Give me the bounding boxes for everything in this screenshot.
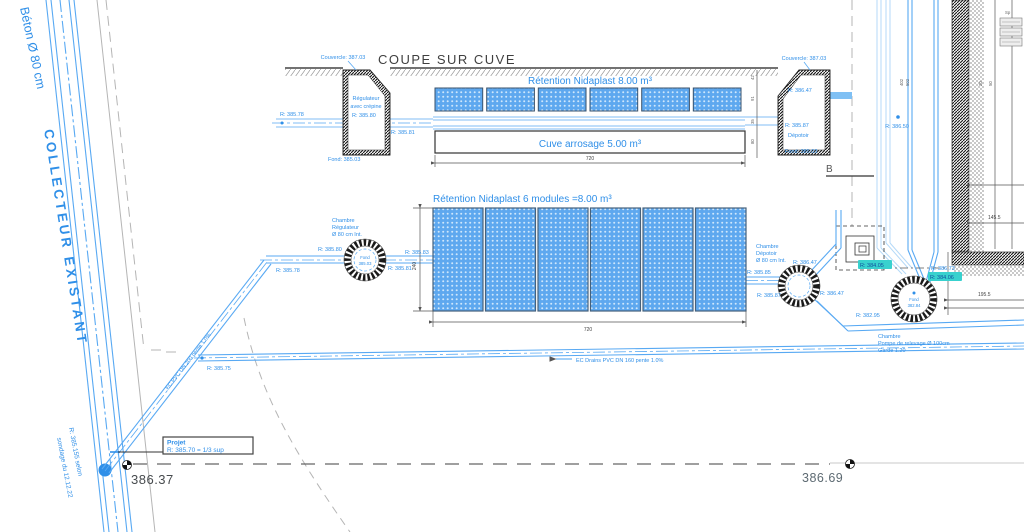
drain-invert-label: R: 385.75	[207, 366, 231, 372]
outlet-stub	[830, 92, 852, 99]
collector-existant-label: COLLECTEUR EXISTANT	[41, 128, 90, 346]
micro-dim: 20	[978, 81, 983, 86]
regulator-label-2: Régulateur	[332, 225, 359, 231]
wall-hatched	[952, 252, 1024, 265]
retention-modules-plan	[433, 208, 746, 311]
couvercle-label: Couvercle: 387.03	[782, 56, 827, 62]
depotoir-name: Dépotoir	[788, 133, 809, 139]
cuve-label: Cuve arrosage 5.00 m³	[539, 139, 642, 150]
invert-label: R: 385.81	[388, 266, 412, 272]
nidaplast-module	[538, 88, 586, 111]
regulator-label-1: Chambre	[332, 218, 355, 224]
regulator-chamber-inner	[351, 246, 379, 274]
dim-small: 91	[750, 96, 755, 101]
nidaplast-module	[643, 208, 693, 311]
inlet-detail-mid	[846, 236, 874, 262]
projet-title: Projet	[167, 440, 186, 447]
wall-invert-label: R: 386.50	[885, 124, 909, 130]
secondary-pipe-line	[843, 320, 1024, 326]
fond-label: Fond: 385.03	[328, 157, 360, 163]
micro-dim: 50	[988, 81, 993, 86]
depotoir-label-1: Chambre	[756, 244, 779, 250]
drain-pipe-label: EC Drains PVC DN 160 pente 1.0%	[576, 358, 664, 364]
invert-top: R: 386.47	[788, 88, 812, 94]
pump-label-1: Chambre	[878, 334, 901, 340]
collector-note-1: R: 385.155 selon	[67, 427, 83, 477]
nidaplast-module	[693, 88, 741, 111]
leader-line	[804, 62, 810, 70]
cad-drawing-canvas: Béton Ø 80 cm COLLECTEUR EXISTANT R: 385…	[0, 0, 1024, 532]
invert-label: R: 385.83	[405, 250, 429, 256]
invert-left: R: 385.78	[280, 112, 304, 118]
benchmark-quadrant	[846, 464, 851, 469]
nidaplast-module	[433, 208, 483, 311]
level-node	[896, 115, 900, 119]
plan-view: Rétention Nidaplast 6 modules =8.00 m³ 2…	[276, 194, 962, 354]
invert-label: R: 386.47	[793, 260, 817, 266]
benchmark-1	[123, 461, 132, 470]
regulator-name-2: avec crépine	[350, 104, 381, 110]
dim-small: 35	[750, 119, 755, 124]
plan-dim-720: 720	[584, 327, 593, 333]
section-dim-720: 720	[586, 156, 595, 162]
right-services: R: 386.50 402 502 20 50 145.5 195.5 Sp B	[826, 0, 1024, 315]
survey-annotations: 386.37 386.69 Projet R: 385.70 = 1/3 sup	[110, 437, 1024, 487]
depotoir-label-3: Ø 80 cm Int.	[756, 258, 786, 264]
ground-hatch	[390, 69, 778, 76]
invert-highlight: R: 384.05	[860, 263, 884, 269]
pump-fond-1: Fond	[909, 297, 919, 302]
boundary-dashed-line	[106, 0, 144, 350]
plan-dim-240: 240	[412, 262, 418, 271]
pump-node	[913, 292, 916, 295]
diag-pipe-label: EC PVC DN 200 pente 1.0%	[165, 332, 213, 391]
inlet-detail-inner	[855, 243, 869, 255]
depotoir-label-2: Dépotoir	[756, 251, 777, 257]
benchmark-quadrant	[850, 460, 855, 465]
benchmark-quadrant	[127, 461, 132, 466]
nidaplast-module	[696, 208, 747, 311]
section-title: COUPE SUR CUVE	[378, 52, 516, 67]
ground-level-1: 386.37	[131, 472, 174, 487]
pump-fond-2: 382.84	[908, 303, 921, 308]
invert-label: R: 385.85	[747, 270, 771, 276]
invert-label: R: 385.78	[276, 268, 300, 274]
micro-dim: 402	[899, 78, 904, 86]
nidaplast-module	[591, 208, 641, 311]
retention-section-label: Rétention Nidaplast 8.00 m³	[528, 76, 653, 87]
pump-label-2: Pompe de relevage Ø 100cm	[878, 341, 950, 347]
secondary-pipe-line	[848, 325, 1024, 331]
dim-small: 80	[750, 139, 755, 144]
invert-highlight: R: 384.06	[930, 275, 954, 281]
invert-label: R: 385.80	[318, 247, 342, 253]
dim-small: 42	[750, 75, 755, 80]
pump-label-3: Garde 1.20	[878, 348, 906, 354]
couvercle-label: Couvercle: 387.03	[321, 55, 366, 61]
depotoir-chamber-inner	[785, 272, 813, 300]
invert-out: R: 385.81	[391, 130, 415, 136]
invert-in: R: 385.87	[785, 123, 809, 129]
nidaplast-module	[486, 208, 536, 311]
wall-hatched	[952, 0, 969, 252]
leader-line	[348, 61, 356, 70]
pipe-node	[281, 122, 284, 125]
junction-node	[200, 356, 203, 359]
section-view: COUPE SUR CUVE Couvercle: 387.03 Régulat…	[272, 52, 852, 167]
wall-insulation	[969, 0, 984, 252]
nidaplast-module	[487, 88, 535, 111]
projet-value: R: 385.70 = 1/3 sup	[167, 447, 224, 454]
nidaplast-module	[590, 88, 638, 111]
wall-insulation	[952, 265, 1024, 276]
ground-level-2: 386.69	[802, 471, 843, 485]
micro-dim: 502	[905, 78, 910, 86]
invert-label: R: 386.73	[931, 266, 955, 272]
nidaplast-module	[435, 88, 483, 111]
regulator-label-3: Ø 80 cm Int.	[332, 232, 362, 238]
invert-label: R: 386.47	[820, 291, 844, 297]
benchmark-quadrant	[123, 465, 128, 470]
collector-material-label: Béton Ø 80 cm	[17, 6, 48, 90]
retention-modules-section	[435, 88, 741, 111]
legend-label: Sp	[1005, 10, 1011, 15]
inlet-detail-core	[859, 246, 866, 252]
ground-hatch	[285, 69, 343, 76]
section-marker-b: B	[826, 164, 833, 175]
nidaplast-module	[538, 208, 588, 311]
regulator-fond-2: 385.03	[359, 261, 372, 266]
invert-label: R: 385.87	[757, 293, 781, 299]
nidaplast-module	[642, 88, 690, 111]
fond-label: Fond: 385.03	[785, 149, 817, 155]
dim-145: 145.5	[988, 215, 1001, 221]
plan-retention-title: Rétention Nidaplast 6 modules =8.00 m³	[433, 194, 612, 205]
invert-label: R: 382.95	[856, 313, 880, 319]
regulator-name-1: Régulateur	[353, 96, 380, 102]
plan-svg: Béton Ø 80 cm COLLECTEUR EXISTANT R: 385…	[0, 0, 1024, 532]
boundary-curve	[244, 318, 350, 532]
regulator-fond-1: Fond	[360, 255, 370, 260]
dim-195: 195.5	[978, 292, 991, 298]
invert-in: R: 385.80	[352, 113, 376, 119]
benchmark-2	[846, 460, 855, 469]
